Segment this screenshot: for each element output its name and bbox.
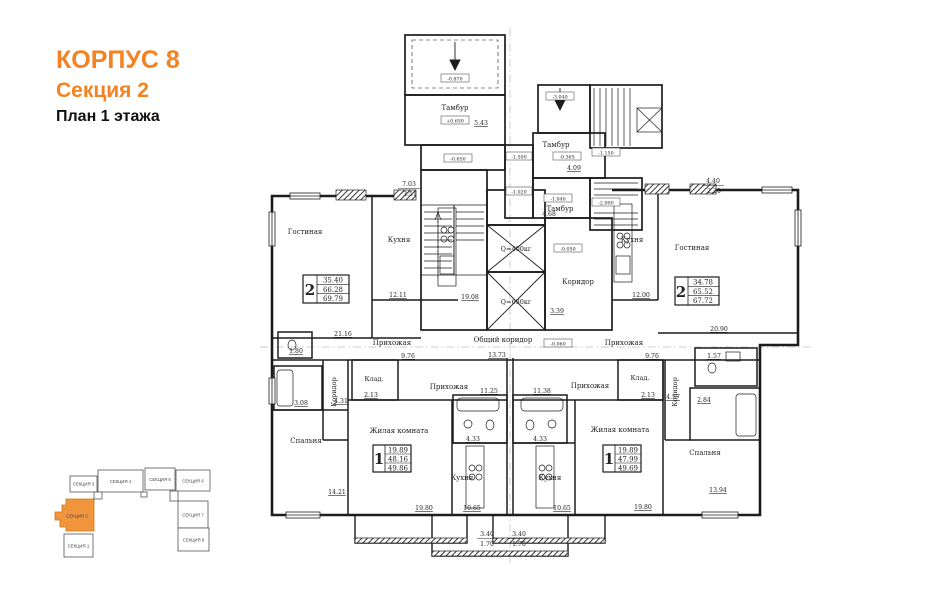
stamp-rooms-1l: 1 [374,450,384,468]
elevator-2-label: Q=630кг [501,298,532,306]
elevation-tambour-left: +0.650 [446,118,464,124]
stamp-area-2r: 65.52 [693,288,713,296]
room-label-bedroom-right: Спальня [689,449,721,457]
elevation-passage-low: -1.020 [511,189,526,195]
balcony-1r-half: 1.70 [512,541,526,548]
stamp-area-2l: 66.28 [323,286,343,294]
minimap-label-6: СЕКЦИЯ 6 [182,479,204,484]
area-common-corridor: 13.73 [488,352,506,359]
apartment-stamp-1-left: 1 19.89 48.16 49.86 [373,445,411,472]
area-bedroom-right: 13.94 [709,487,727,494]
room-label-room-left: Жилая комната [370,427,429,435]
area-bath-1r: 4.33 [533,436,547,443]
fraction-labels: 7.03 3.51 4.40 2.20 3.40 1.70 3.40 1.70 [398,178,724,548]
area-wc-right: 1.57 [707,353,721,360]
page: КОРПУС 8 Секция 2 План 1 этажа [0,0,941,600]
stamp-total-2l: 69.79 [323,295,343,303]
room-label-corridor-right: Коридор [671,377,679,407]
bathroom-fixtures [277,340,756,436]
area-hall-left: 9.76 [401,353,415,360]
stamp-rooms-1r: 1 [604,450,614,468]
stamp-living-1r: 19.89 [618,446,638,454]
elevation-porch-right: -3.040 [552,94,567,100]
elevation-tambour-r1: -0.365 [559,154,574,160]
area-wc-left: 1.80 [289,348,303,355]
stamp-living-2r: 34.78 [693,279,713,287]
area-hall-1l: 11.25 [480,388,498,395]
area-living-left: 21.16 [334,331,352,338]
loggia-left-half: 3.51 [403,191,417,198]
area-room-1r: 19.80 [634,504,652,511]
stamp-living-2l: 35.40 [323,277,343,285]
stamp-rooms-2l: 2 [305,281,315,299]
area-hall-1r: 11.38 [533,388,551,395]
loggia-right-half: 2.20 [707,188,721,195]
elevation-basement: -2.000 [598,200,613,206]
stamp-total-2r: 67.72 [693,297,713,305]
area-kitchen-1l: 10.65 [463,505,481,512]
room-label-hallway-left: Прихожая [373,339,412,347]
area-room-1l: 19.80 [415,505,433,512]
stamp-area-1l: 48.16 [388,455,409,463]
area-kitchen-left: 12.11 [389,292,407,299]
room-label-kitchen-1r: Кухня [539,474,562,482]
area-kitchen-1r: 10.65 [553,505,571,512]
room-label-living-right: Гостиная [675,244,710,252]
balcony-1l-full: 3.40 [480,531,494,538]
minimap-label-1: СЕКЦИЯ 1 [68,544,90,549]
room-label-tambour-right-1: Тамбур [542,141,570,149]
area-storage-1l: 2.13 [364,392,378,399]
room-label-kitchen-1l: Кухня [451,474,474,482]
room-label-kitchen-left: Кухня [388,236,411,244]
elevator-1-label: Q=400кг [501,245,532,253]
minimap-label-4: СЕКЦИЯ 4 [110,479,132,484]
elevation-corridor: -0.050 [560,246,575,252]
area-tambour-r2: 4.68 [542,211,556,218]
site-minimap: СЕКЦИЯ 3 СЕКЦИЯ 4 СЕКЦИЯ 5 СЕКЦИЯ 6 СЕКЦ… [55,468,210,557]
elevation-passage-up: -1.500 [511,154,526,160]
area-kitchen-right: 12.00 [632,292,650,299]
stamp-area-1r: 47.99 [618,455,638,463]
balcony-1r-full: 3.40 [512,531,526,538]
area-bath-1l: 4.33 [466,436,480,443]
area-corridor-core: 3.39 [550,308,564,315]
elevation-marks: -0.870 +0.650 -0.650 -3.040 -0.365 -1.15… [441,74,620,347]
loggia-right-full: 4.40 [706,178,720,185]
area-bath-right: 2.84 [697,397,711,404]
room-label-common-corridor: Общий коридор [474,336,533,344]
area-corridor-left: 4.31 [334,398,348,405]
area-hall-right: 9.76 [645,353,659,360]
stamp-living-1l: 19.89 [388,446,408,454]
area-labels: 5.43 4.09 4.68 3.39 19.08 13.73 21.16 12… [289,120,728,512]
elevation-tambour-r2: -1.040 [550,196,565,202]
room-label-storage-right: Клад. [630,374,649,382]
stamp-total-1l: 49.86 [388,464,409,472]
area-living-right: 20.90 [710,326,728,333]
stamp-rooms-2r: 2 [676,283,686,301]
area-tambour-left: 5.43 [474,120,488,127]
floor-plan-svg: Тамбур Тамбур Тамбур Коридор Общий корид… [0,0,941,600]
room-label-hallway-1r: Прихожая [571,382,610,390]
area-storage-1r: 2.13 [641,392,655,399]
elevation-porch-left: -0.870 [447,76,462,82]
room-label-corridor-core: Коридор [562,278,594,286]
elevator-shafts [487,225,545,330]
room-label-room-right: Жилая комната [591,426,650,434]
room-label-living-left: Гостиная [288,228,323,236]
elevation-room-left: -0.650 [450,156,465,162]
room-label-storage-left: Клад. [364,375,383,383]
stamp-total-1r: 49.69 [618,464,638,472]
room-label-bedroom-left: Спальня [290,437,322,445]
loggia-left-full: 7.03 [402,181,416,188]
minimap-label-5: СЕКЦИЯ 5 [149,477,171,482]
apartment-stamp-2-left: 2 35.40 66.28 69.79 [303,275,349,303]
room-label-hallway-right: Прихожая [605,339,644,347]
room-label-hallway-1l: Прихожая [430,383,469,391]
room-label-tambour-left: Тамбур [441,104,469,112]
area-stairwell: 19.08 [461,294,479,301]
apartment-stamp-1-right: 1 19.89 47.99 49.69 [603,445,641,472]
minimap-label-7: СЕКЦИЯ 7 [182,513,204,518]
windows [269,187,801,518]
apartment-stamp-2-right: 2 34.78 65.52 67.72 [675,277,719,305]
minimap-label-3: СЕКЦИЯ 3 [73,482,95,487]
minimap-label-2: СЕКЦИЯ 2 [66,514,88,519]
elevation-common: -0.060 [550,341,565,347]
room-label-kitchen-right: Кухня [621,236,644,244]
minimap-label-8: СЕКЦИЯ 8 [183,538,205,543]
balcony-1l-half: 1.70 [480,541,494,548]
area-tambour-r1: 4.09 [567,165,581,172]
elevation-stair-mid: -1.150 [598,150,613,156]
area-corridor-right: 4.57 [666,394,680,401]
area-bath-left: 3.08 [294,400,308,407]
area-bedroom-left: 14.21 [328,489,346,496]
